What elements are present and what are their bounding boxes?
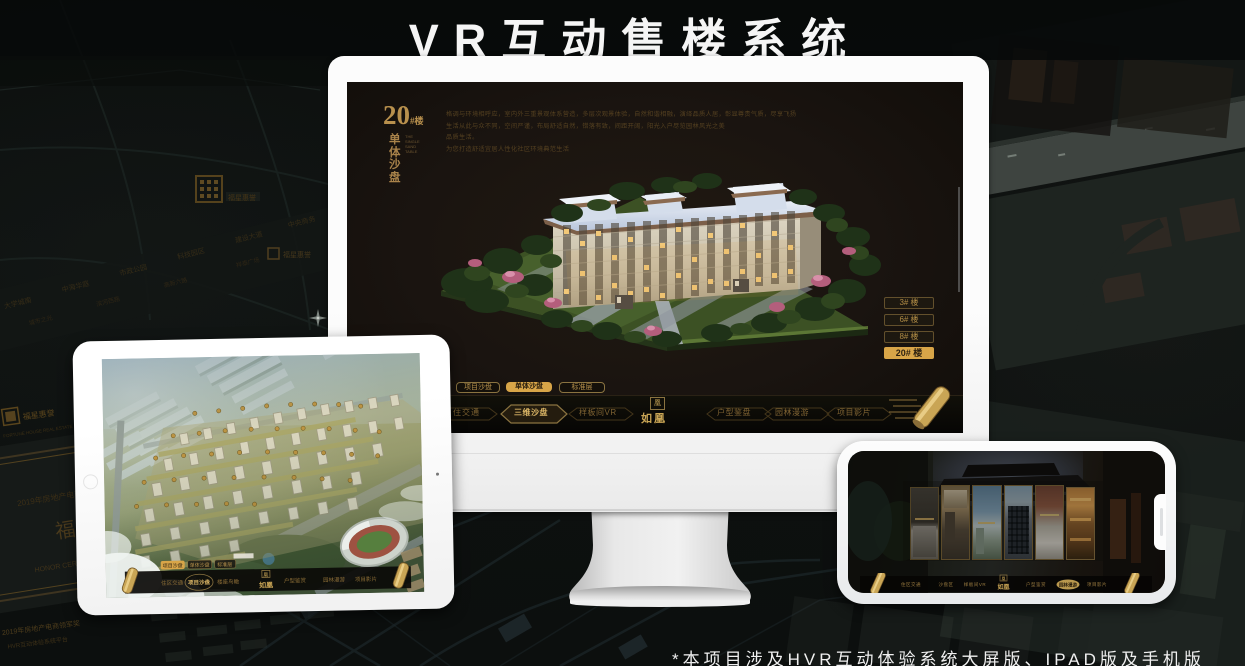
svg-text:2019年房地产电商领军奖: 2019年房地产电商领军奖 — [1, 619, 80, 638]
svg-text:住区交通: 住区交通 — [901, 581, 921, 588]
svg-text:福星惠誉: 福星惠誉 — [283, 250, 311, 259]
svg-text:标准层: 标准层 — [217, 561, 232, 568]
svg-text:户型鉴赏: 户型鉴赏 — [1026, 581, 1046, 588]
svg-text:福星惠誉: 福星惠誉 — [22, 407, 55, 421]
svg-text:样板间VR: 样板间VR — [964, 581, 987, 588]
svg-text:凰: 凰 — [263, 572, 268, 578]
svg-text:园林漫游: 园林漫游 — [1059, 582, 1077, 589]
svg-text:如凰: 如凰 — [259, 580, 273, 589]
svg-text:沙盘区: 沙盘区 — [939, 581, 954, 587]
svg-text:HVR互动体验系统平台: HVR互动体验系统平台 — [7, 635, 68, 650]
svg-text:福星惠誉: 福星惠誉 — [228, 193, 256, 202]
svg-text:凰: 凰 — [1002, 576, 1006, 581]
svg-text:项目影片: 项目影片 — [1087, 581, 1107, 588]
svg-text:项目沙盘: 项目沙盘 — [163, 562, 183, 569]
svg-text:单体沙盘: 单体沙盘 — [190, 562, 210, 569]
svg-text:如凰: 如凰 — [997, 583, 1009, 591]
